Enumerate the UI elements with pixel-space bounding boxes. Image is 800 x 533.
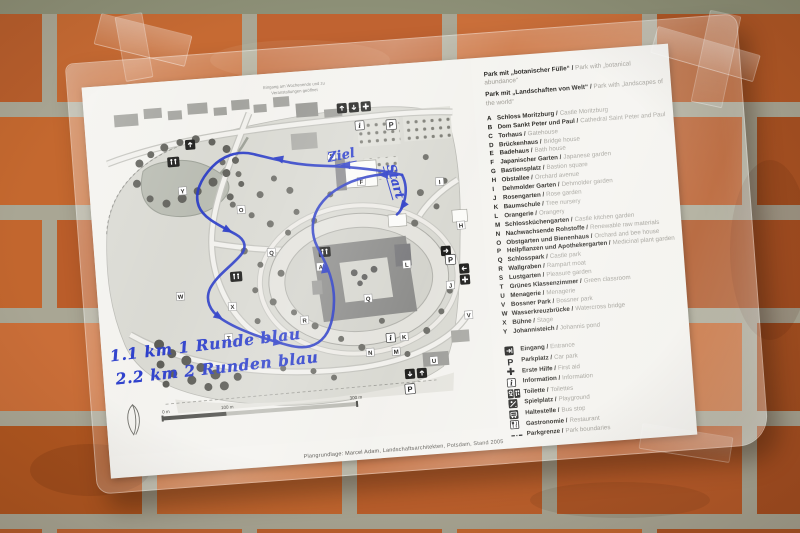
toilets-icon — [167, 157, 180, 168]
svg-text:U: U — [432, 359, 437, 365]
map-area: Eingang am Wochenende und zu Veranstaltu… — [82, 58, 500, 478]
legend-header-1-de: Park mit „botanischer Fülle“ / — [484, 65, 574, 79]
svg-text:Q: Q — [366, 297, 371, 303]
svg-text:Y: Y — [180, 189, 184, 195]
bus-stop-icon — [509, 409, 526, 419]
svg-text:H: H — [459, 223, 464, 229]
parking-icon: P — [505, 356, 522, 366]
first-aid-icon — [360, 101, 371, 112]
svg-text:100 m: 100 m — [221, 404, 234, 410]
legend-facilities: Eingang /Entrance P Parkplatz /Car park … — [504, 333, 691, 442]
first-aid-icon — [460, 274, 471, 285]
svg-text:P: P — [448, 255, 454, 264]
entrance-icon — [504, 346, 521, 356]
legend-items: ASchloss Moritzburg /Castle Moritzburg B… — [487, 102, 683, 338]
svg-text:300 m: 300 m — [349, 395, 362, 401]
playground-icon — [508, 399, 525, 409]
toilets-icon — [230, 271, 243, 282]
parking-icon: P — [405, 384, 416, 395]
park-map-svg: Eingang am Wochenende und zu Veranstaltu… — [82, 58, 499, 456]
parking-icon: P — [386, 119, 397, 130]
svg-text:P: P — [407, 385, 413, 394]
exit-down-icon — [348, 102, 359, 113]
information-icon: i — [386, 333, 396, 343]
entrance-up-icon — [417, 368, 428, 379]
information-icon: i — [355, 121, 365, 131]
svg-text:J: J — [449, 283, 453, 289]
first-aid-icon — [506, 367, 523, 377]
entrance-up-icon — [336, 103, 347, 114]
parking-icon: P — [445, 254, 456, 265]
svg-text:Q: Q — [269, 251, 274, 257]
toilets-icon — [507, 388, 524, 398]
svg-text:P: P — [388, 120, 394, 129]
exit-down-icon — [405, 369, 416, 380]
svg-text:N: N — [368, 351, 373, 357]
legend: Park mit „botanischer Fülle“ / Park with… — [470, 44, 697, 450]
svg-text:M: M — [394, 350, 399, 356]
photo-of-map-on-brick-wall: Eingang am Wochenende und zu Veranstaltu… — [0, 0, 800, 533]
svg-text:V: V — [467, 313, 471, 319]
map-paper: Eingang am Wochenende und zu Veranstaltu… — [82, 44, 698, 479]
entrance-left-icon — [459, 263, 470, 274]
svg-text:P: P — [507, 357, 514, 367]
svg-text:0 m: 0 m — [162, 409, 170, 415]
restaurant-icon — [510, 420, 527, 430]
plastic-sleeve: Eingang am Wochenende und zu Veranstaltu… — [65, 13, 769, 494]
entrance-up-icon — [185, 139, 196, 150]
svg-text:O: O — [239, 208, 244, 214]
information-icon: i — [507, 377, 524, 387]
svg-text:W: W — [178, 295, 184, 301]
svg-text:X: X — [230, 305, 234, 311]
